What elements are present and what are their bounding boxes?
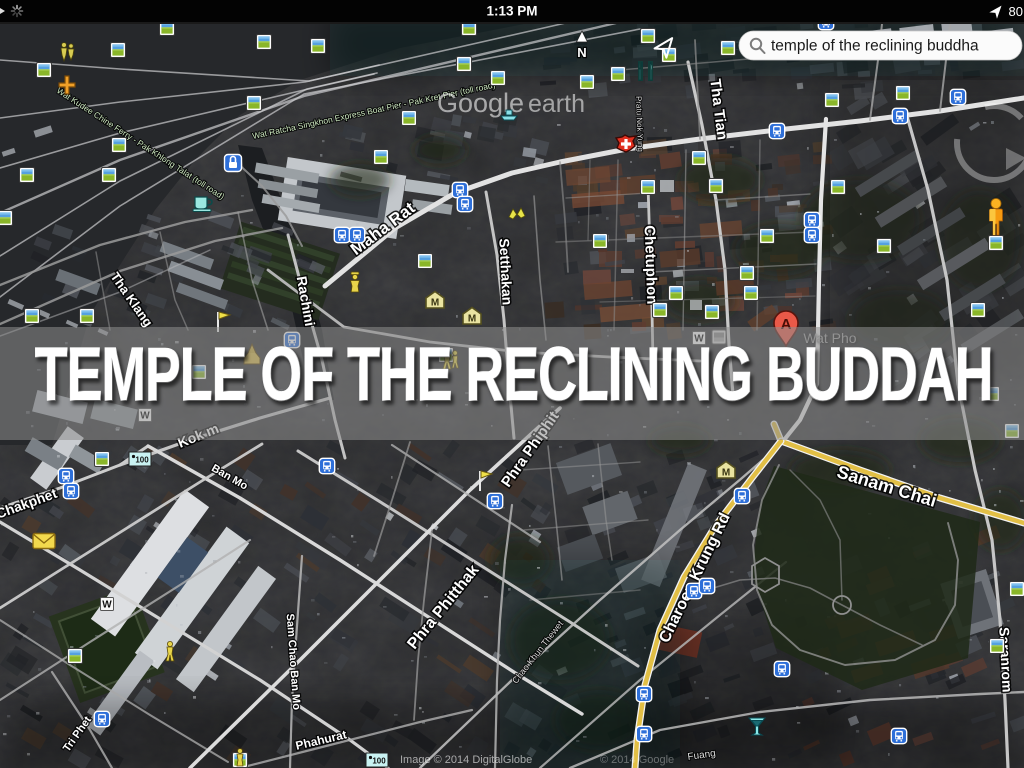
- svg-text:Saranrom: Saranrom: [996, 627, 1015, 693]
- svg-text:80: 80: [1009, 4, 1023, 19]
- svg-text:100: 100: [372, 757, 386, 766]
- svg-text:1:13 PM: 1:13 PM: [486, 4, 537, 19]
- svg-text:N: N: [577, 45, 586, 60]
- svg-text:earth: earth: [528, 90, 585, 118]
- svg-text:Image © 2014 DigitalGlobe: Image © 2014 DigitalGlobe: [400, 754, 532, 766]
- svg-text:Chetuphon: Chetuphon: [641, 225, 661, 305]
- svg-text:TEMPLE OF THE RECLINING BUDDAH: TEMPLE OF THE RECLINING BUDDAH: [35, 332, 993, 416]
- svg-text:100: 100: [135, 456, 149, 465]
- svg-text:temple of the reclining buddha: temple of the reclining buddha: [771, 38, 979, 55]
- svg-text:© 2014 Google: © 2014 Google: [600, 754, 674, 766]
